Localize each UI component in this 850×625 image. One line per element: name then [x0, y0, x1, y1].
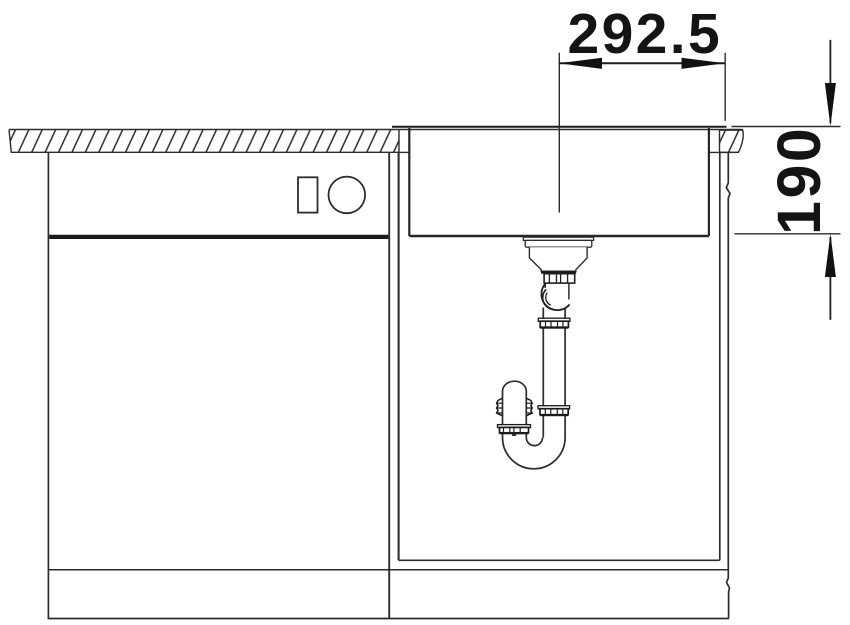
- svg-text:292.5: 292.5: [567, 2, 722, 66]
- svg-text:190: 190: [765, 126, 833, 235]
